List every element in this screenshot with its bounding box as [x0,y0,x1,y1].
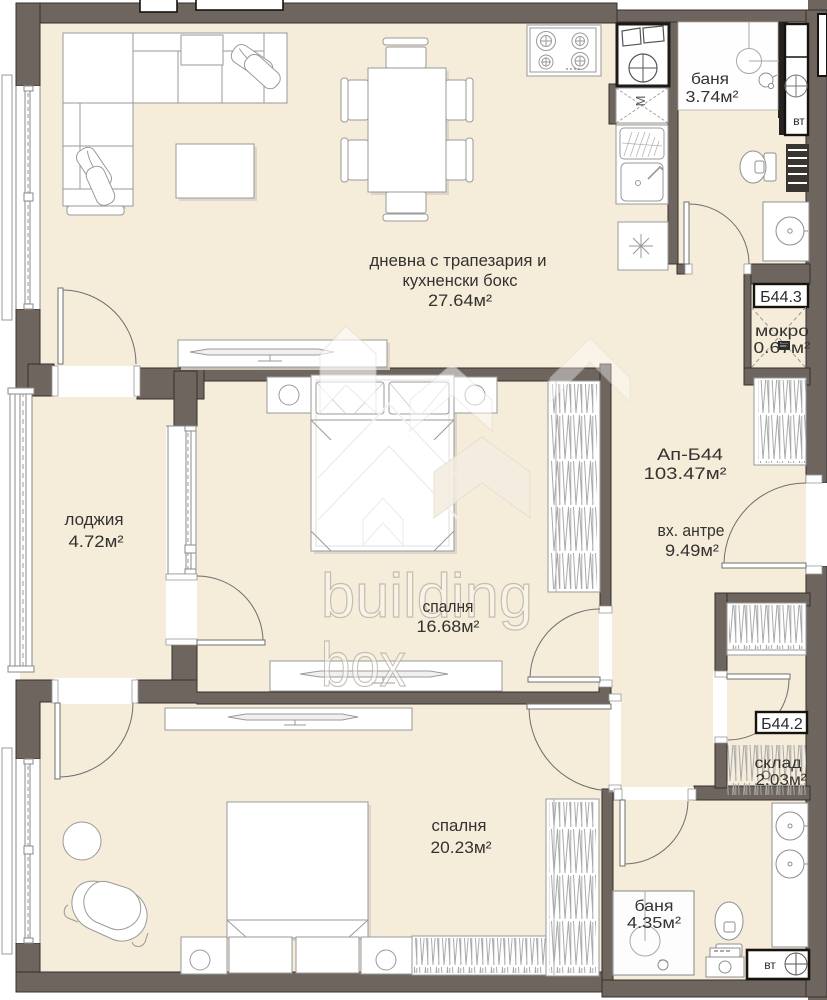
svg-text:Б44.2: Б44.2 [761,716,803,733]
svg-text:Б44.3: Б44.3 [760,289,802,306]
svg-text:дневна с трапезария и: дневна с трапезария и [370,251,547,270]
svg-text:Ап-Б44: Ап-Б44 [657,445,723,464]
svg-text:4.72м²: 4.72м² [69,532,124,551]
svg-text:27.64м²: 27.64м² [428,291,492,310]
svg-text:box: box [321,631,406,700]
svg-text:4.35м²: 4.35м² [627,915,682,932]
svg-text:вт: вт [764,958,776,972]
svg-text:мокро: мокро [755,323,809,340]
svg-text:0.67м²: 0.67м² [754,340,812,357]
svg-text:спалня: спалня [432,816,487,835]
svg-text:спалня: спалня [423,597,474,616]
svg-text:баня: баня [691,71,729,88]
svg-text:M: M [633,96,648,107]
svg-text:вт: вт [793,114,805,128]
svg-text:20.23м²: 20.23м² [431,838,492,857]
svg-text:баня: баня [635,898,674,915]
svg-text:2.03м²: 2.03м² [756,772,808,789]
svg-text:3.74м²: 3.74м² [686,89,740,106]
svg-text:103.47м²: 103.47м² [644,464,727,483]
svg-text:кухненски бокс: кухненски бокс [403,271,518,290]
svg-text:вх. антре: вх. антре [658,521,725,540]
svg-text:склад: склад [755,755,803,772]
svg-text:лоджия: лоджия [65,510,124,529]
svg-text:9.49м²: 9.49м² [665,541,719,560]
svg-text:16.68м²: 16.68м² [417,617,480,636]
